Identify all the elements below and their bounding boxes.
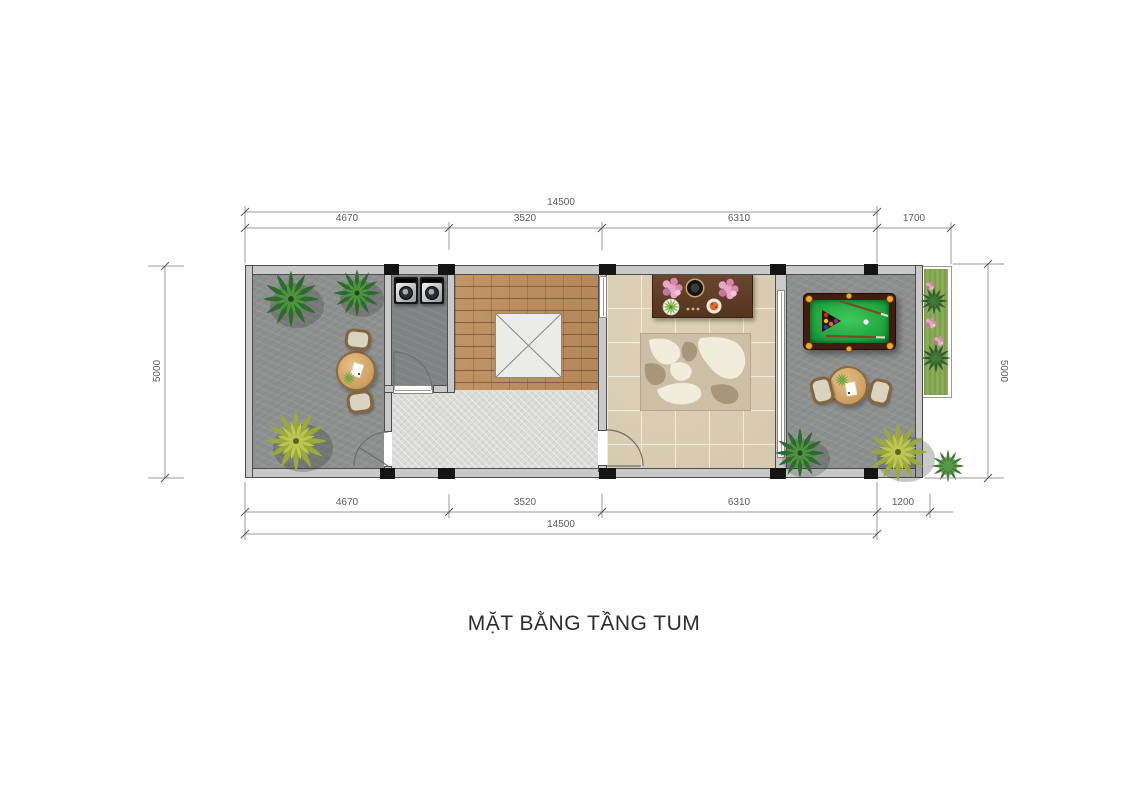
threshold-line: [395, 390, 431, 391]
column: [438, 468, 455, 479]
rug-pattern: [641, 334, 751, 411]
stair-void: [495, 313, 562, 378]
dim-bottom-seg-4: 1200: [892, 498, 914, 508]
dim-bottom-seg-2: 3520: [514, 498, 536, 508]
room-door-opening: [598, 431, 607, 465]
column: [599, 264, 616, 275]
washer-drum: [425, 286, 439, 300]
window-glazing-line: [781, 292, 782, 456]
left-terrace-table: [336, 351, 376, 391]
room-terrace-glass-wall: [777, 290, 785, 458]
outer-wall-bottom: [245, 468, 923, 478]
washer-control-panel: [396, 279, 416, 282]
column: [380, 468, 395, 479]
washer-body: [396, 283, 416, 302]
floor-plan-canvas: 14500 4670 3520 6310 1700 4670 3520 6310…: [0, 0, 1131, 800]
outer-wall-left: [245, 265, 253, 478]
dim-top-seg-4: 1700: [903, 214, 925, 224]
washer-body: [422, 283, 442, 302]
laundry-threshold: [393, 385, 433, 394]
dim-top-seg-1: 4670: [336, 214, 358, 224]
window-glazing-line: [603, 278, 604, 316]
dim-bottom-overall: 14500: [547, 520, 575, 530]
outer-wall-top: [245, 265, 923, 275]
washer-drum: [399, 286, 413, 300]
area-rug: [640, 333, 751, 411]
column: [599, 468, 616, 479]
column: [864, 468, 878, 479]
terrace-door-opening: [384, 432, 392, 466]
dim-left-height: 5000: [153, 351, 163, 391]
washing-machine-2: [420, 277, 444, 304]
washing-machine-1: [394, 277, 418, 304]
left-terrace-chair-top: [344, 328, 372, 352]
corner-plant: [932, 450, 964, 482]
hallway-floor: [392, 386, 598, 469]
plan-title: MẶT BẰNG TẦNG TUM: [468, 612, 701, 636]
dim-right-height: 5000: [998, 351, 1008, 391]
pool-table: [803, 293, 896, 350]
dim-bottom-seg-1: 4670: [336, 498, 358, 508]
dim-top-seg-3: 6310: [728, 214, 750, 224]
column: [864, 264, 878, 275]
column: [770, 264, 786, 275]
dim-top-seg-2: 3520: [514, 214, 536, 224]
column: [438, 264, 455, 275]
dim-bottom-seg-3: 6310: [728, 498, 750, 508]
dim-top-overall: 14500: [547, 198, 575, 208]
right-terrace-table: [828, 366, 868, 406]
coffee-table: [652, 273, 753, 318]
planter-grass: [924, 269, 948, 395]
pool-table-felt: [810, 300, 889, 343]
wall-laundry-stairs: [447, 274, 455, 393]
column: [770, 468, 786, 479]
column: [384, 264, 399, 275]
wall-terrace-laundry: [384, 274, 392, 432]
washer-control-panel: [422, 279, 442, 282]
outer-wall-right: [915, 265, 923, 478]
stairwell-window: [599, 276, 607, 318]
